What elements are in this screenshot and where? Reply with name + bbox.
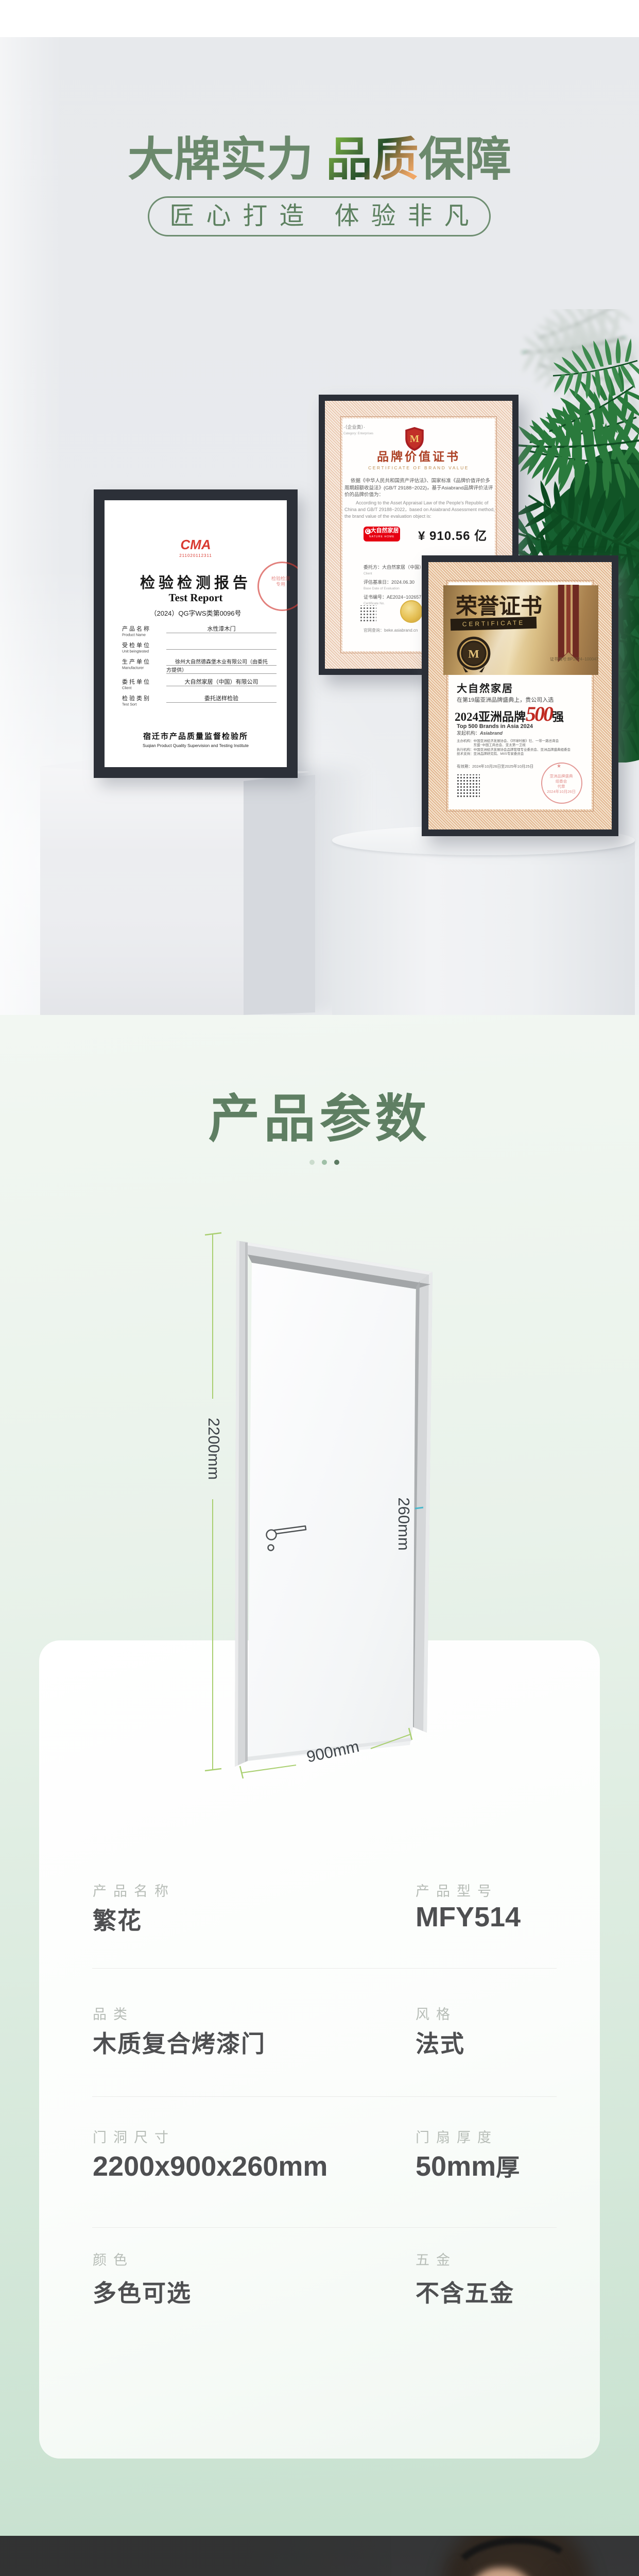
svg-text:M: M [468, 647, 479, 660]
svg-text:2200mm: 2200mm [205, 1418, 223, 1480]
svg-text:M: M [410, 434, 419, 445]
svg-text:260mm: 260mm [395, 1497, 413, 1550]
